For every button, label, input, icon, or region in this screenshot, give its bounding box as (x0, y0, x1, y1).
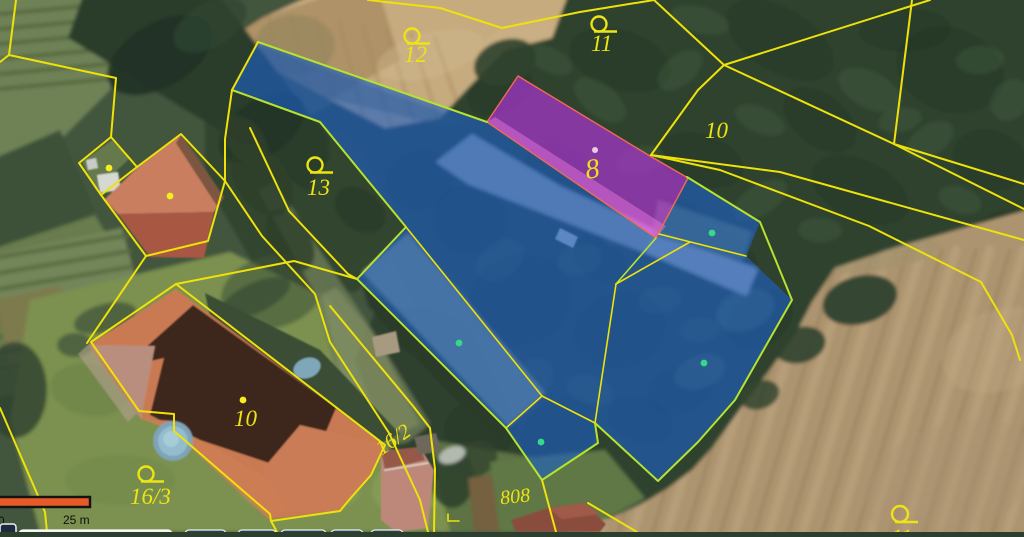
svg-text:13: 13 (307, 175, 330, 200)
svg-text:16/3: 16/3 (130, 484, 171, 509)
svg-text:11: 11 (591, 31, 612, 56)
svg-text:25 m: 25 m (63, 513, 90, 527)
svg-text:11: 11 (891, 525, 912, 532)
svg-text:10: 10 (234, 406, 258, 431)
svg-text:808: 808 (499, 484, 531, 509)
svg-text:12: 12 (404, 42, 427, 67)
svg-text:10: 10 (705, 118, 729, 143)
